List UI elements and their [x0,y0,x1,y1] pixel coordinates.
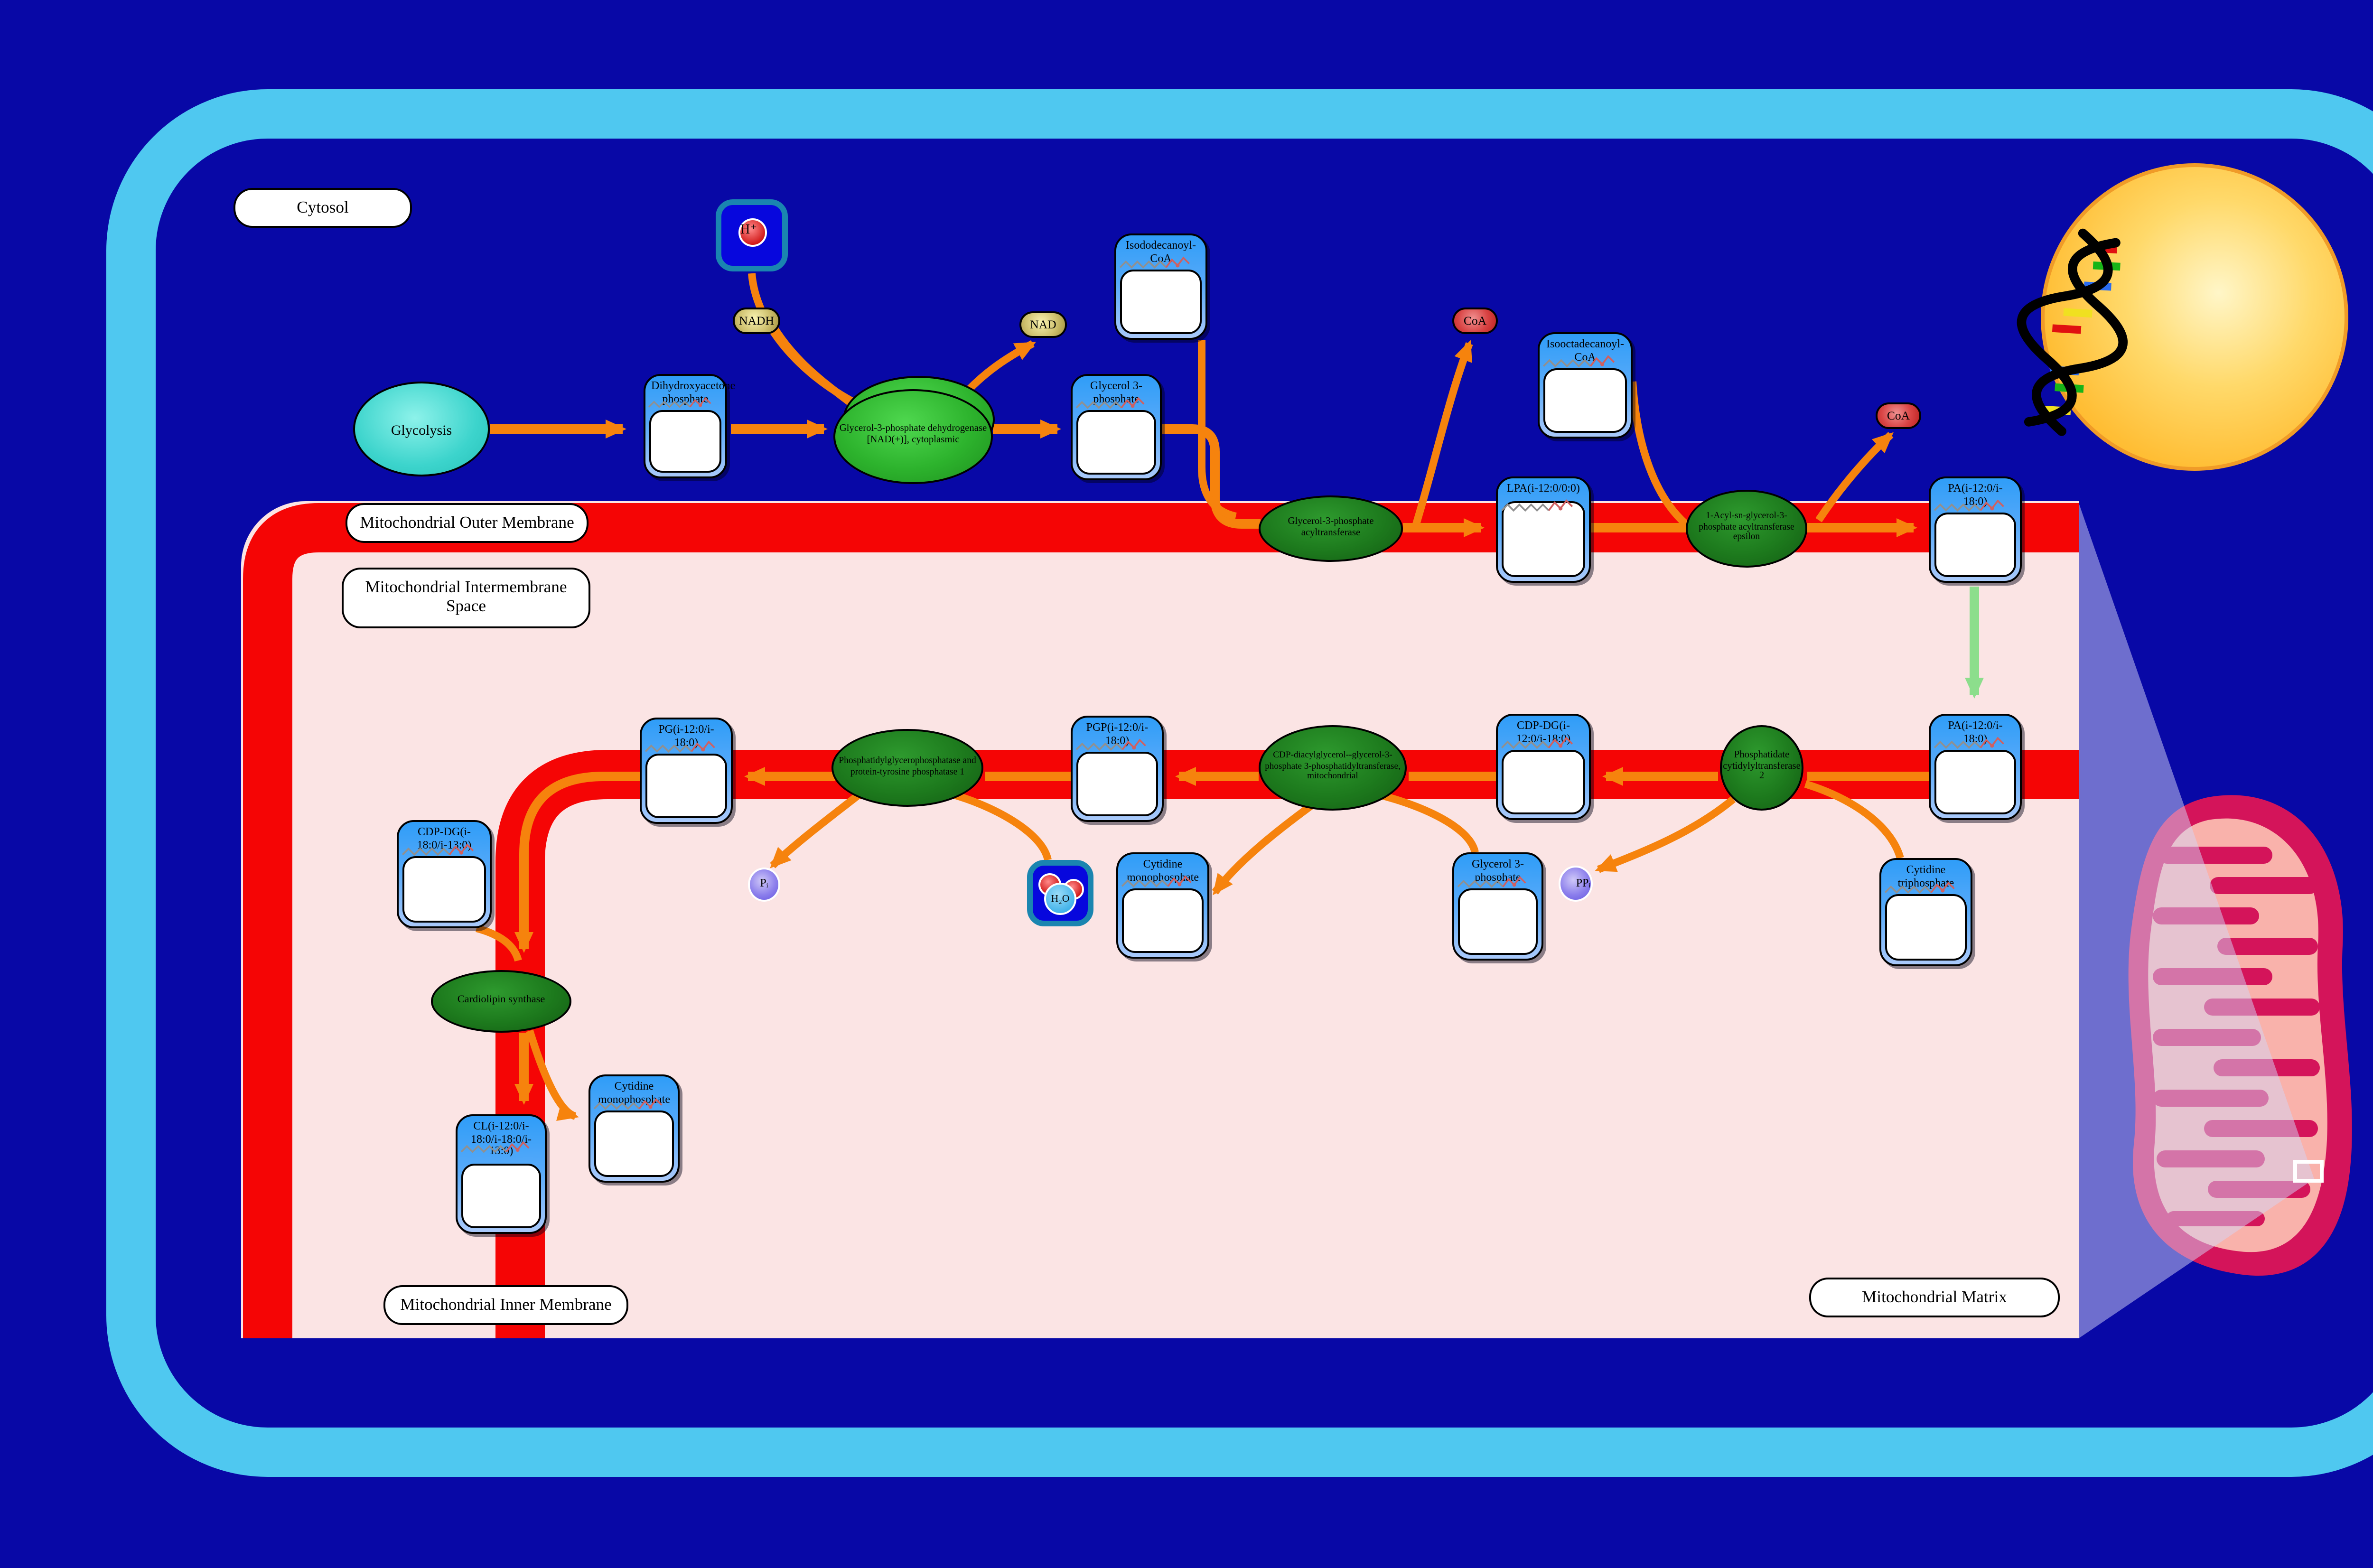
pathway-diagram: Cytosol Mitochondrial Outer Membrane Mit… [0,0,2373,1567]
enzyme-gpd[interactable]: Glycerol-3-phosphate dehydrogenase [NAD(… [833,389,993,484]
mitochondrion-illustration [0,0,2373,1568]
